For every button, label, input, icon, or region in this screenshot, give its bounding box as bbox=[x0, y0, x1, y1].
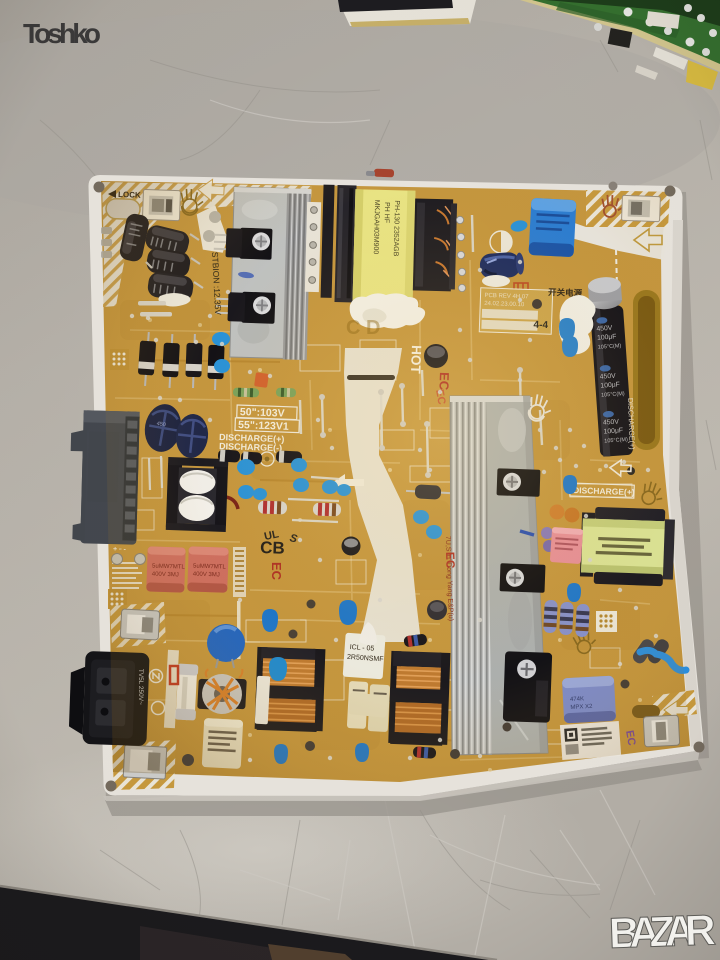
svg-text:BAZAR: BAZAR bbox=[608, 906, 717, 958]
